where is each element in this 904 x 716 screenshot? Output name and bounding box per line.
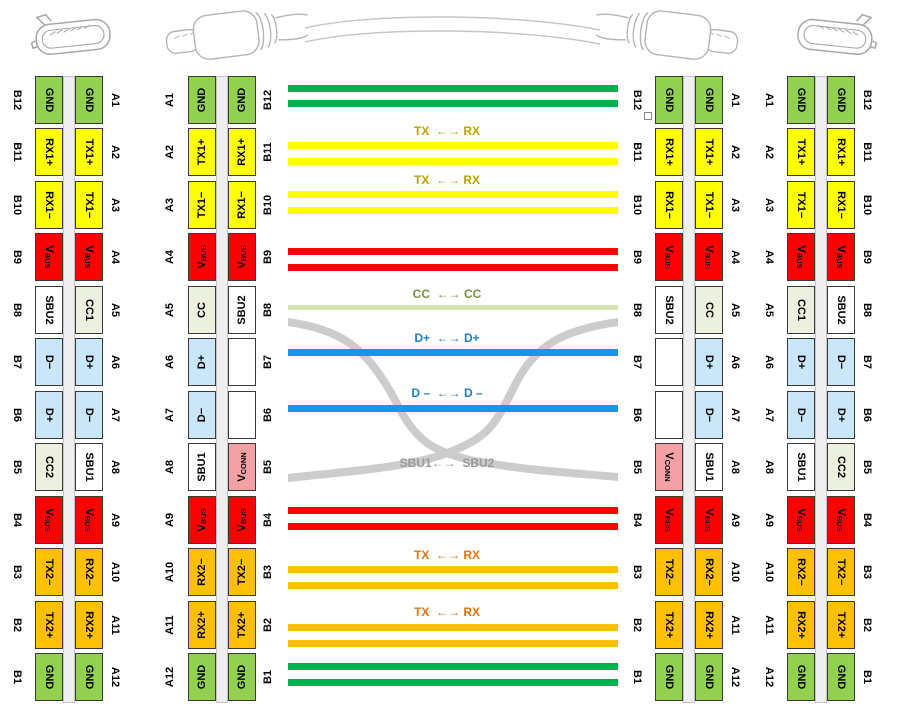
wire-yellow — [288, 142, 618, 149]
pin-number-label-a1: A1 — [723, 76, 747, 124]
pin-text: B9 — [843, 245, 891, 269]
pin-group-receptacle-left: B12GNDGNDA1B11RX1+TX1+A2B10RX1−TX1−A3B9V… — [5, 76, 127, 706]
pin-cell: SBU1 — [787, 443, 815, 491]
pin-cell: D− — [35, 338, 63, 386]
connector-body-strip — [815, 76, 827, 703]
pin-text: A1 — [91, 88, 139, 112]
pin-number-label-a1: A1 — [103, 76, 127, 124]
pin-number-label-a7: A7 — [723, 391, 747, 439]
pin-text: B1 — [244, 665, 292, 689]
pin-cell: GND — [787, 76, 815, 124]
pin-text: A4 — [91, 245, 139, 269]
pin-cell: RX2+ — [188, 601, 216, 649]
pin-cell: RX1+ — [35, 128, 63, 176]
pin-cell: SBU2 — [35, 286, 63, 334]
pin-number-label-b7: B7 — [256, 338, 280, 386]
wire-green — [288, 663, 618, 670]
pin-cell: RX2− — [188, 548, 216, 596]
pin-text: A7 — [91, 403, 139, 427]
pin-cell: TX1+ — [188, 128, 216, 176]
pin-number-label-a5: A5 — [723, 286, 747, 334]
pin-text: B4 — [244, 508, 292, 532]
pin-text-subscript: BUS — [200, 508, 208, 524]
pin-cell: RX1− — [655, 181, 683, 229]
pin-text: B2 — [843, 613, 891, 637]
pin-cell: TX1+ — [787, 128, 815, 176]
pin-cell: RX2− — [787, 548, 815, 596]
pin-cell: RX1− — [35, 181, 63, 229]
wire-orange — [288, 582, 618, 589]
pin-text-subscript: BUS — [43, 516, 51, 532]
pin-text-subscript: BUS — [83, 253, 91, 269]
pin-text-subscript: BUS — [663, 253, 671, 269]
pin-number-label-a6: A6 — [103, 338, 127, 386]
wire-orange — [288, 566, 618, 573]
wire-green — [288, 100, 618, 107]
pin-number-label-b10: B10 — [256, 181, 280, 229]
usbc-cable-pinout-diagram: B12GNDGNDA1B11RX1+TX1+A2B10RX1−TX1−A3B9V… — [0, 0, 904, 716]
pin-number-label-b12: B12 — [855, 76, 879, 124]
pin-cell: RX2+ — [787, 601, 815, 649]
wire-red — [288, 523, 618, 530]
pin-text: B11 — [843, 140, 891, 164]
wire-label: TX ←→ RX — [280, 174, 614, 186]
pin-number-label-b11: B11 — [855, 128, 879, 176]
usbc-receptacle-drawing-right — [786, 6, 886, 60]
pin-cell: GND — [35, 653, 63, 701]
pin-text: B8 — [244, 298, 292, 322]
pin-cell: GND — [35, 76, 63, 124]
wire-yellow — [288, 191, 618, 198]
pin-cell: GND — [188, 653, 216, 701]
pin-cell: VBUS — [655, 496, 683, 544]
pin-text: B5 — [843, 455, 891, 479]
pin-number-label-a11: A11 — [723, 601, 747, 649]
pin-cell: D+ — [787, 338, 815, 386]
pin-number-label-a10: A10 — [103, 548, 127, 596]
pin-text: B3 — [244, 560, 292, 584]
pin-cell: VBUS — [188, 233, 216, 281]
pin-number-label-a7: A7 — [103, 391, 127, 439]
pin-cell: VBUS — [787, 496, 815, 544]
wire-orange — [288, 640, 618, 647]
pin-number-label-b8: B8 — [855, 286, 879, 334]
connector-body-strip — [216, 76, 228, 703]
pin-text: A12 — [91, 665, 139, 689]
pin-text: A10 — [91, 560, 139, 584]
pin-number-label-b3: B3 — [256, 548, 280, 596]
pin-text-subscript: BUS — [703, 253, 711, 269]
pin-number-label-a5: A5 — [103, 286, 127, 334]
pin-cell: GND — [787, 653, 815, 701]
wire-yellow — [288, 207, 618, 214]
pin-number-label-a9: A9 — [723, 496, 747, 544]
wire-yellow — [288, 158, 618, 165]
pin-text: B4 — [843, 508, 891, 532]
wire-blue — [288, 349, 618, 356]
wire-red — [288, 248, 618, 255]
pin-text: B8 — [843, 298, 891, 322]
pin-text-subscript: BUS — [663, 516, 671, 532]
pin-cell: D− — [787, 391, 815, 439]
wire-label: TX ←→ RX — [280, 549, 614, 561]
pin-number-label-b10: B10 — [855, 181, 879, 229]
pin-cell: RX1+ — [655, 128, 683, 176]
pin-cell: VBUS — [188, 496, 216, 544]
pin-text: A5 — [91, 298, 139, 322]
pin-cell: GND — [188, 76, 216, 124]
pin-text: B12 — [843, 88, 891, 112]
pin-number-label-a2: A2 — [103, 128, 127, 176]
pin-number-label-a8: A8 — [103, 443, 127, 491]
pin-text: B10 — [843, 193, 891, 217]
pin-text: B7 — [843, 350, 891, 374]
pin-cell: GND — [655, 653, 683, 701]
pin-number-label-a2: A2 — [723, 128, 747, 176]
pin-text-subscript: BUS — [703, 516, 711, 532]
wire-label: TX ←→ RX — [280, 125, 614, 137]
pin-cell: CC2 — [35, 443, 63, 491]
pin-number-label-b2: B2 — [256, 601, 280, 649]
pin-number-label-a4: A4 — [723, 233, 747, 281]
pin-text: A11 — [91, 613, 139, 637]
pin-cell: SBU1 — [188, 443, 216, 491]
wire-green — [288, 679, 618, 686]
pin-number-label-b12: B12 — [256, 76, 280, 124]
pin-cell: VBUS — [787, 233, 815, 281]
pin-cell: TX2− — [35, 548, 63, 596]
wire-blue — [288, 405, 618, 412]
pin-number-label-a4: A4 — [103, 233, 127, 281]
pin-text: A9 — [91, 508, 139, 532]
pin-number-label-a8: A8 — [723, 443, 747, 491]
pin-text: B6 — [843, 403, 891, 427]
pin-text: A2 — [91, 140, 139, 164]
pin-cell: VBUS — [655, 233, 683, 281]
pin-text-subscript: BUS — [835, 516, 843, 532]
pin-cell: TX2− — [655, 548, 683, 596]
pin-text: B6 — [244, 403, 292, 427]
pin-number-label-b6: B6 — [256, 391, 280, 439]
pin-text-subscript: BUS — [795, 516, 803, 532]
pin-group-plug-right: B12GNDGNDA1B11RX1+TX1+A2B10RX1−TX1−A3B9V… — [625, 76, 747, 706]
pin-cell — [655, 338, 683, 386]
wire-red — [288, 264, 618, 271]
pin-number-label-b7: B7 — [855, 338, 879, 386]
wire-label: SBU1←→ SBU2 — [280, 457, 614, 469]
pin-text-subscript: BUS — [83, 516, 91, 532]
pin-cell: TX1− — [188, 181, 216, 229]
wire-label: TX ←→ RX — [280, 606, 614, 618]
pin-number-label-a11: A11 — [103, 601, 127, 649]
pin-number-label-b3: B3 — [855, 548, 879, 596]
pin-cell — [655, 391, 683, 439]
pin-cell: D+ — [35, 391, 63, 439]
pin-text-subscript: BUS — [835, 253, 843, 269]
wire-label: D – ←→ D – — [280, 387, 614, 399]
pin-text: B9 — [244, 245, 292, 269]
pin-number-label-a12: A12 — [103, 653, 127, 701]
pin-number-label-b1: B1 — [855, 653, 879, 701]
pin-number-label-b2: B2 — [855, 601, 879, 649]
wire-label: CC ←→ CC — [280, 288, 614, 300]
pin-text: A3 — [91, 193, 139, 217]
pin-text-subscript: BUS — [200, 245, 208, 261]
pin-number-label-a9: A9 — [103, 496, 127, 544]
pin-number-label-b5: B5 — [855, 443, 879, 491]
pin-number-label-a10: A10 — [723, 548, 747, 596]
wire-green — [288, 85, 618, 92]
pin-cell: TX1− — [787, 181, 815, 229]
pin-number-label-b4: B4 — [855, 496, 879, 544]
pin-number-label-b6: B6 — [855, 391, 879, 439]
pin-cell: D+ — [188, 338, 216, 386]
pin-group-plug-left: A1GNDGNDB12A2TX1+RX1+B11A3TX1−RX1−B10A4V… — [158, 76, 280, 706]
pin-number-label-a6: A6 — [723, 338, 747, 386]
wire-red — [288, 507, 618, 514]
pin-text: B10 — [244, 193, 292, 217]
pin-text: A6 — [91, 350, 139, 374]
pin-text: B7 — [244, 350, 292, 374]
pin-number-label-b9: B9 — [256, 233, 280, 281]
pin-number-label-b8: B8 — [256, 286, 280, 334]
pin-cell: VCONN — [655, 443, 683, 491]
pin-number-label-b11: B11 — [256, 128, 280, 176]
pin-cell: VBUS — [35, 233, 63, 281]
pin-number-label-b4: B4 — [256, 496, 280, 544]
pin-text: B1 — [843, 665, 891, 689]
pin-number-label-b9: B9 — [855, 233, 879, 281]
pin-cell: VBUS — [35, 496, 63, 544]
pin-text: B3 — [843, 560, 891, 584]
pin-text: A8 — [91, 455, 139, 479]
pin-group-receptacle-right: A1GNDGNDB12A2TX1+RX1+B11A3TX1−RX1−B10A4V… — [757, 76, 879, 706]
pin-number-label-a3: A3 — [103, 181, 127, 229]
pin-cell: CC — [188, 286, 216, 334]
wire-cc — [288, 305, 618, 310]
connector-body-strip — [63, 76, 75, 703]
pin-number-label-a3: A3 — [723, 181, 747, 229]
pin-text: B12 — [244, 88, 292, 112]
usbc-receptacle-drawing-left — [22, 6, 122, 60]
pin-cell: CC1 — [787, 286, 815, 334]
wire-label: D+ ←→ D+ — [280, 332, 614, 344]
wire-orange — [288, 624, 618, 631]
pin-text: B11 — [244, 140, 292, 164]
pin-number-label-a12: A12 — [723, 653, 747, 701]
pin-cell: D− — [188, 391, 216, 439]
pin-number-label-b1: B1 — [256, 653, 280, 701]
pin-text-subscript: BUS — [43, 253, 51, 269]
pin-text-subscript: CONN — [663, 460, 671, 482]
pin-cell: TX2+ — [35, 601, 63, 649]
pin-cell: GND — [655, 76, 683, 124]
pin-cell: TX2+ — [655, 601, 683, 649]
pin-text-subscript: BUS — [795, 253, 803, 269]
pin-cell: SBU2 — [655, 286, 683, 334]
pin-number-label-b5: B5 — [256, 443, 280, 491]
connector-body-strip — [683, 76, 695, 703]
